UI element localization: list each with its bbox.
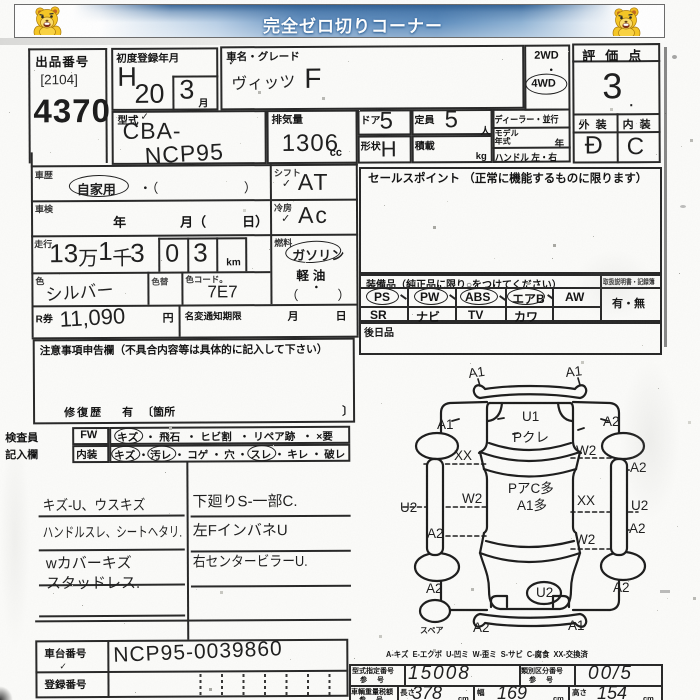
svg-text:A1: A1: [568, 618, 585, 633]
svg-text:PアC多: PアC多: [508, 480, 554, 496]
svg-text:A2: A2: [613, 580, 630, 595]
svg-text:スペア: スペア: [420, 626, 443, 635]
svg-text:W2: W2: [576, 443, 596, 458]
svg-text:XX: XX: [454, 448, 472, 463]
svg-text:U1: U1: [522, 409, 539, 424]
svg-text:A2: A2: [473, 620, 490, 635]
svg-text:XX: XX: [577, 493, 595, 508]
svg-text:Pクレ: Pクレ: [513, 430, 549, 445]
svg-text:A1多: A1多: [517, 497, 547, 513]
svg-text:A1: A1: [437, 417, 454, 432]
svg-text:W2: W2: [575, 532, 595, 547]
svg-text:A1: A1: [467, 364, 485, 381]
svg-text:A2: A2: [603, 414, 620, 429]
svg-text:A2: A2: [426, 581, 443, 596]
svg-text:U2: U2: [536, 585, 553, 600]
svg-text:A1: A1: [565, 363, 583, 380]
svg-text:A2: A2: [427, 526, 444, 541]
svg-text:U2: U2: [400, 500, 417, 515]
svg-text:W2: W2: [462, 491, 482, 506]
svg-text:A2: A2: [629, 521, 646, 536]
